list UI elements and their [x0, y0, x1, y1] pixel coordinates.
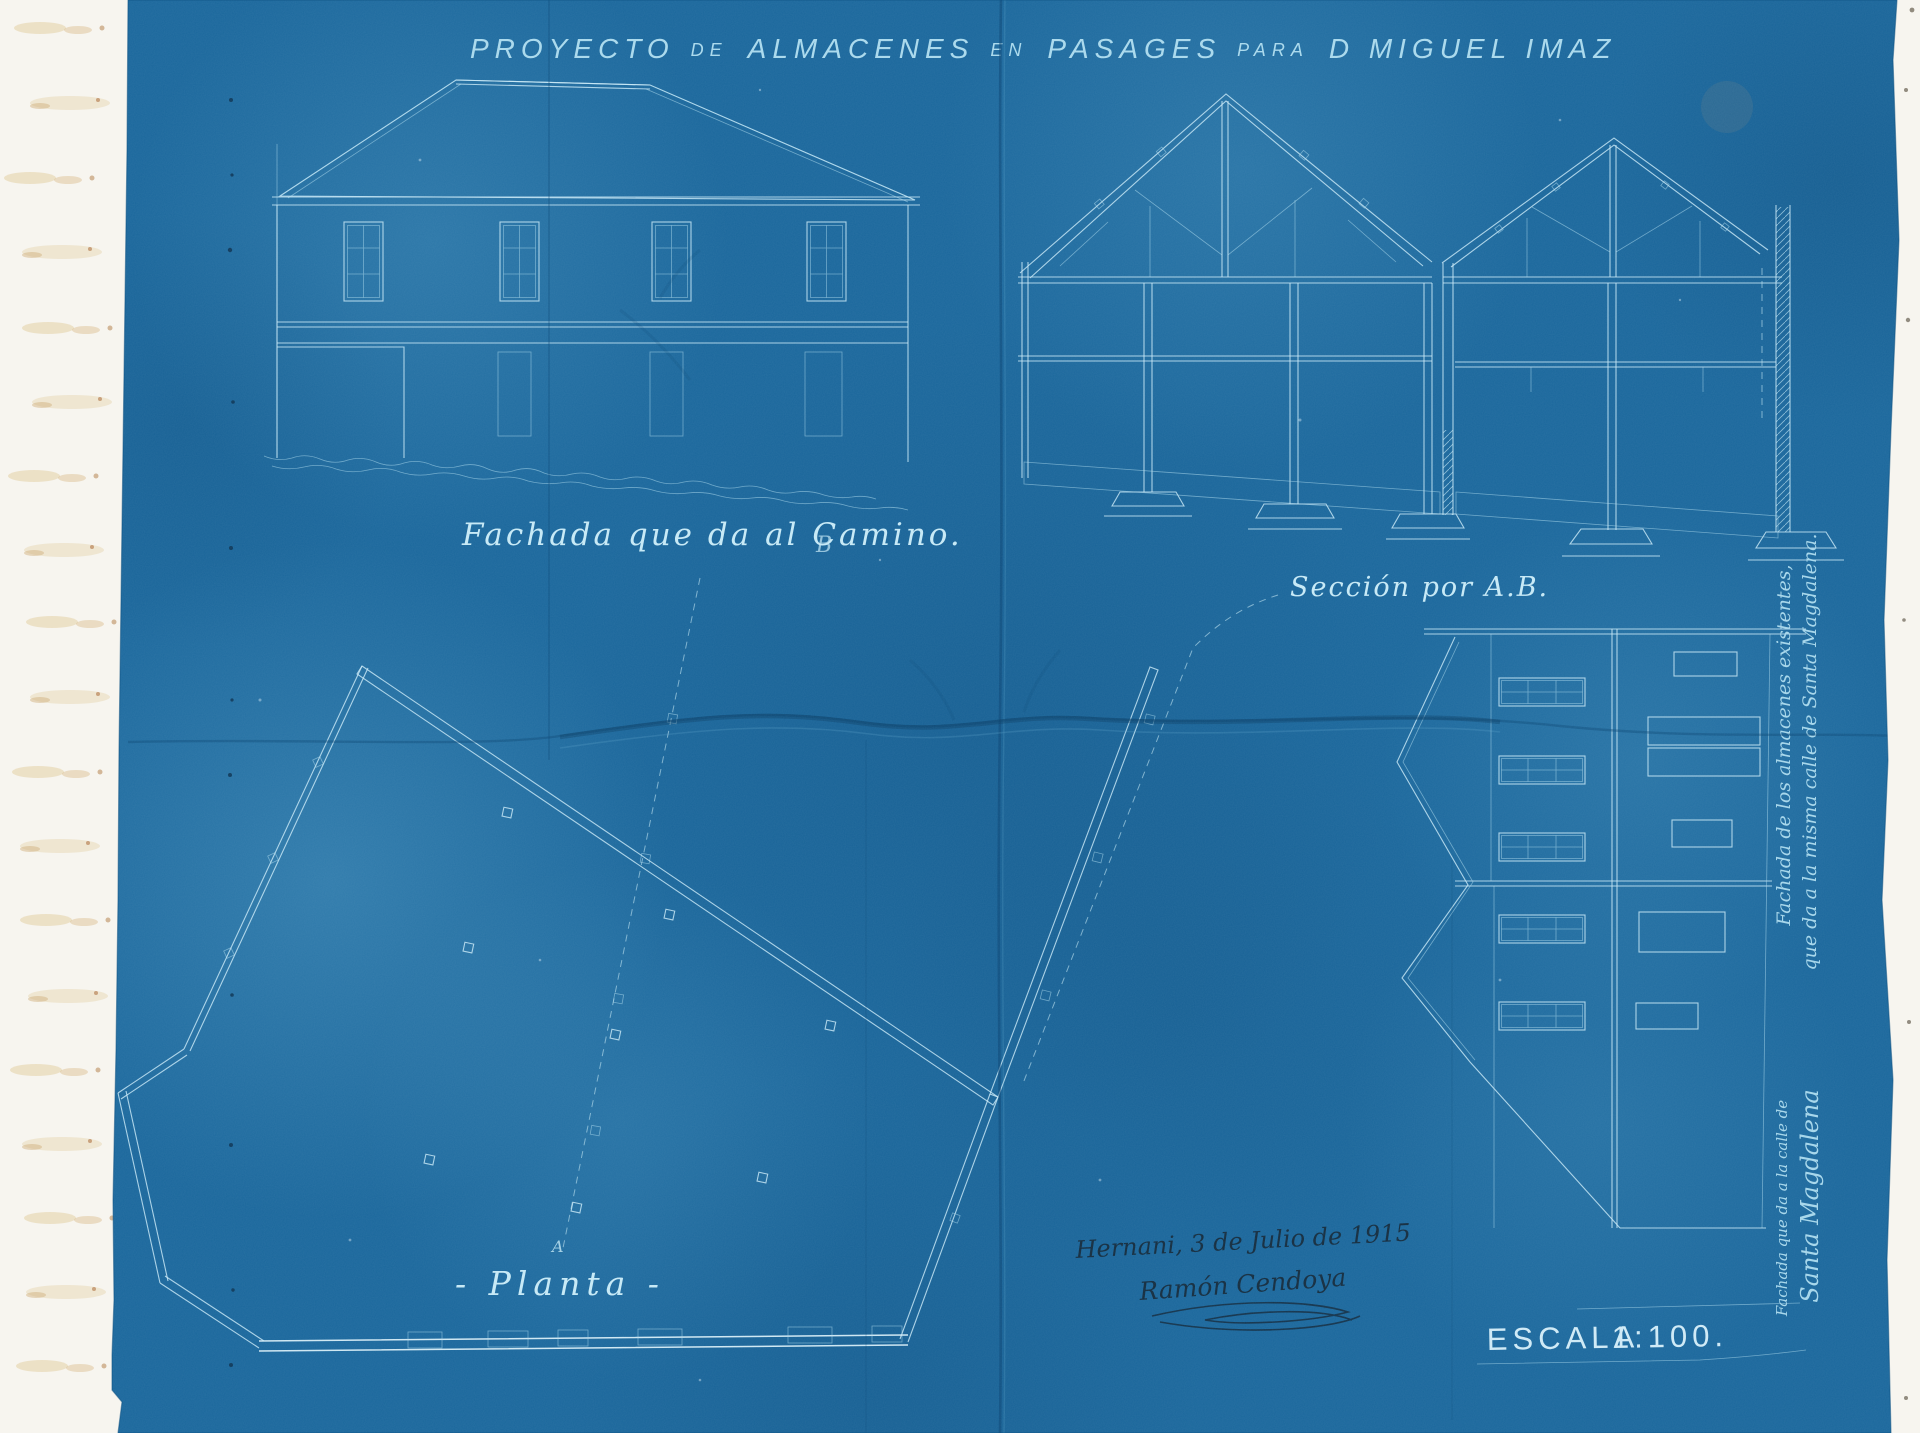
- paper-grain: [100, 0, 1920, 1433]
- blueprint-sheet: PROYECTODEALMACENESENPASAGESPARAD MIGUEL…: [0, 0, 1920, 1433]
- blueprint-paper: PROYECTODEALMACENESENPASAGESPARAD MIGUEL…: [0, 0, 1920, 1433]
